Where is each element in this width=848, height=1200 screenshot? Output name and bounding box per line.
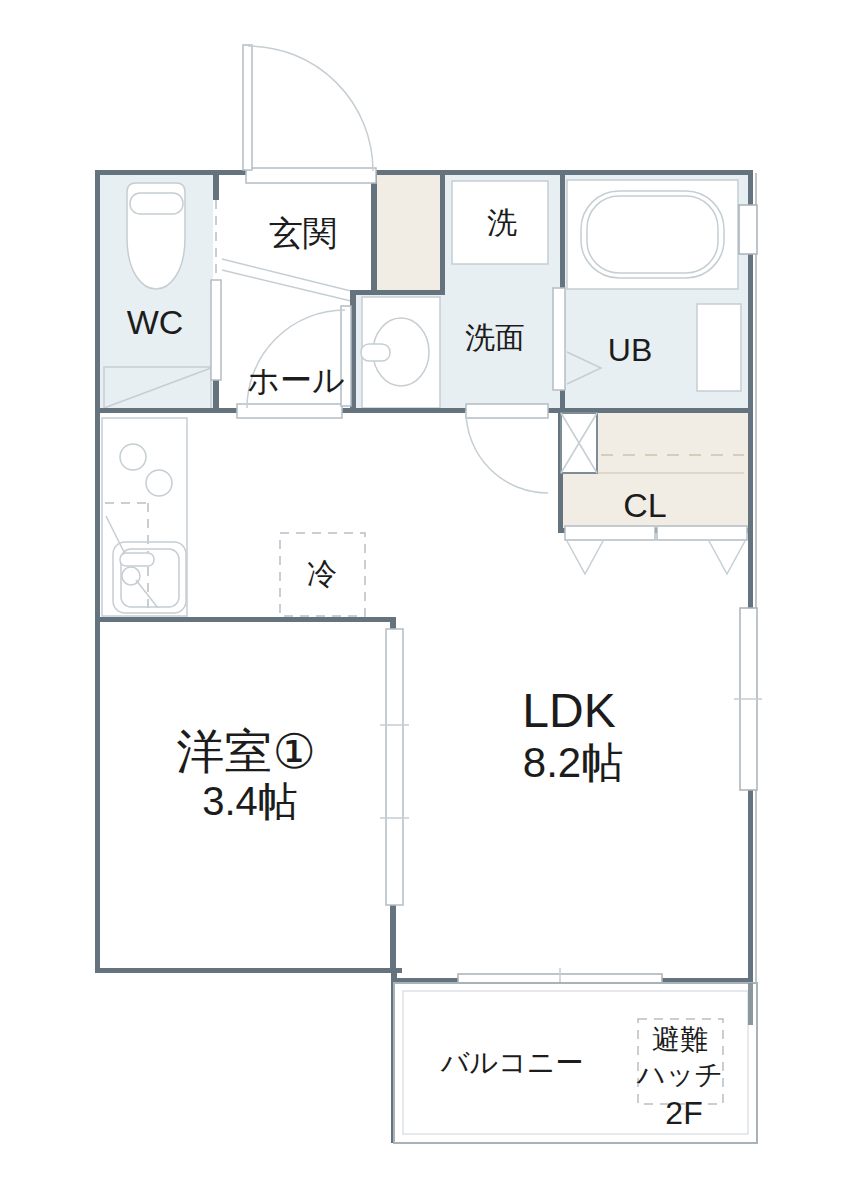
entrance-label: 玄関 xyxy=(269,216,337,250)
kitchen-counter-icon xyxy=(102,418,187,616)
floor-plan: WC 玄関 ホール 洗 洗面 UB CL 冷 洋室① 3.4帖 LDK 8.2帖… xyxy=(0,0,848,1200)
closet-label: CL xyxy=(623,488,666,522)
bath-counter xyxy=(697,304,741,391)
hall-label: ホール xyxy=(247,364,345,396)
ldk-area: 8.2帖 xyxy=(523,742,623,784)
bathtub-icon xyxy=(567,180,738,289)
closet-doors xyxy=(565,526,747,574)
washroom-label: 洗面 xyxy=(465,323,525,353)
bath-label: UB xyxy=(608,334,652,366)
floor-plan-drawing xyxy=(0,0,848,1200)
ldk-side-window xyxy=(734,608,762,790)
hatch-label-line1: 避難 xyxy=(652,1026,708,1054)
washroom-door xyxy=(466,404,548,493)
pipe-space xyxy=(561,413,597,473)
sliding-door xyxy=(380,629,409,905)
shoe-cabinet xyxy=(376,175,440,291)
entrance-step-lines xyxy=(222,259,351,301)
wc-label: WC xyxy=(127,305,184,339)
western-room-area: 3.4帖 xyxy=(202,781,298,821)
ldk-label: LDK xyxy=(522,687,615,735)
refrigerator-label: 冷 xyxy=(307,559,337,589)
toilet-icon xyxy=(127,183,185,289)
washbasin-icon xyxy=(361,297,440,408)
hatch-label-line2: ハッチ xyxy=(637,1061,723,1089)
entrance-door xyxy=(243,45,376,183)
hatch-floor-label: 2F xyxy=(665,1097,702,1129)
western-room-label: 洋室① xyxy=(176,728,315,776)
laundry-label: 洗 xyxy=(487,208,517,238)
balcony-label: バルコニー xyxy=(441,1049,584,1077)
bath-window xyxy=(739,205,757,254)
